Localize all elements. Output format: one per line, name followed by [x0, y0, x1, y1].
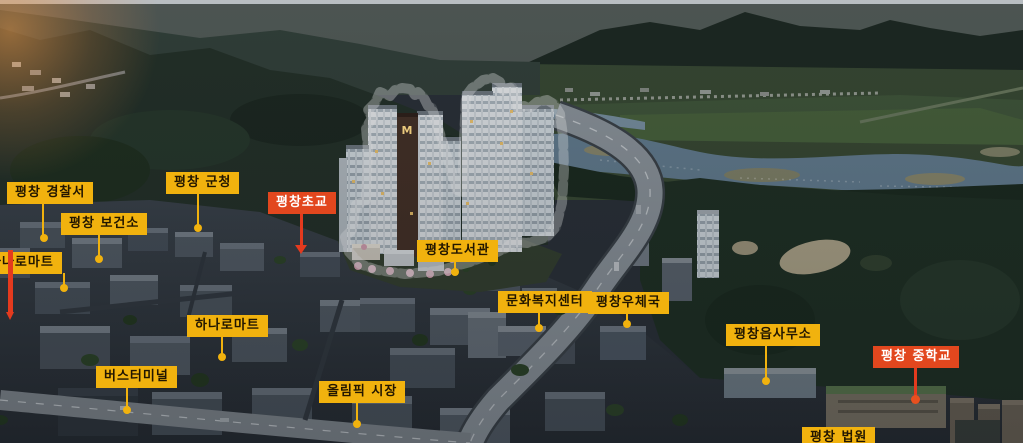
label-hanaro-mart: 하나로마트 [187, 315, 268, 337]
location-dot [40, 234, 48, 242]
location-dot [762, 377, 770, 385]
location-dot [353, 420, 361, 428]
leader-arrow-line [300, 214, 303, 245]
label-pyeongchang-health-center: 평창 보건소 [61, 213, 147, 235]
leader-line [356, 403, 358, 421]
aerial-rendering: M 평창 경찰서 평창 군청 평창 보건소 하나로마트 평창초교 평창도서관 문… [0, 0, 1023, 443]
label-culture-welfare-center: 문화복지센터 [498, 291, 592, 313]
label-pyeongchang-elementary-school: 평창초교 [268, 192, 336, 214]
leader-line [98, 234, 100, 256]
leader-line [765, 345, 767, 378]
leader-line [126, 388, 128, 407]
location-dot [60, 284, 68, 292]
location-dot [95, 255, 103, 263]
label-olympic-market: 올림픽 시장 [319, 381, 405, 403]
location-dot [451, 268, 459, 276]
leader-line [197, 193, 199, 225]
arrowhead [295, 245, 307, 254]
label-pyeongchang-post-office: 평창우체국 [588, 292, 669, 314]
location-dot [123, 406, 131, 414]
leader-line [914, 368, 917, 396]
location-dot [623, 320, 631, 328]
red-marker-bar-tip [6, 312, 14, 320]
label-pyeongchang-eup-office: 평창읍사무소 [726, 324, 820, 346]
label-pyeongchang-court: 평창 법원 [802, 427, 875, 443]
label-pyeongchang-police-station: 평창 경찰서 [7, 182, 93, 204]
location-dot [535, 324, 543, 332]
red-marker-bar [8, 250, 13, 312]
label-pyeongchang-middle-school: 평창 중학교 [873, 346, 959, 368]
leader-line [42, 204, 44, 235]
location-dot [911, 395, 920, 404]
label-pyeongchang-library: 평창도서관 [417, 240, 498, 262]
leader-line [221, 337, 223, 354]
label-bus-terminal: 버스터미널 [96, 366, 177, 388]
label-pyeongchang-county-office: 평창 군청 [166, 172, 239, 194]
brand-m-logo: M [398, 124, 416, 137]
location-dot [194, 224, 202, 232]
location-dot [218, 353, 226, 361]
